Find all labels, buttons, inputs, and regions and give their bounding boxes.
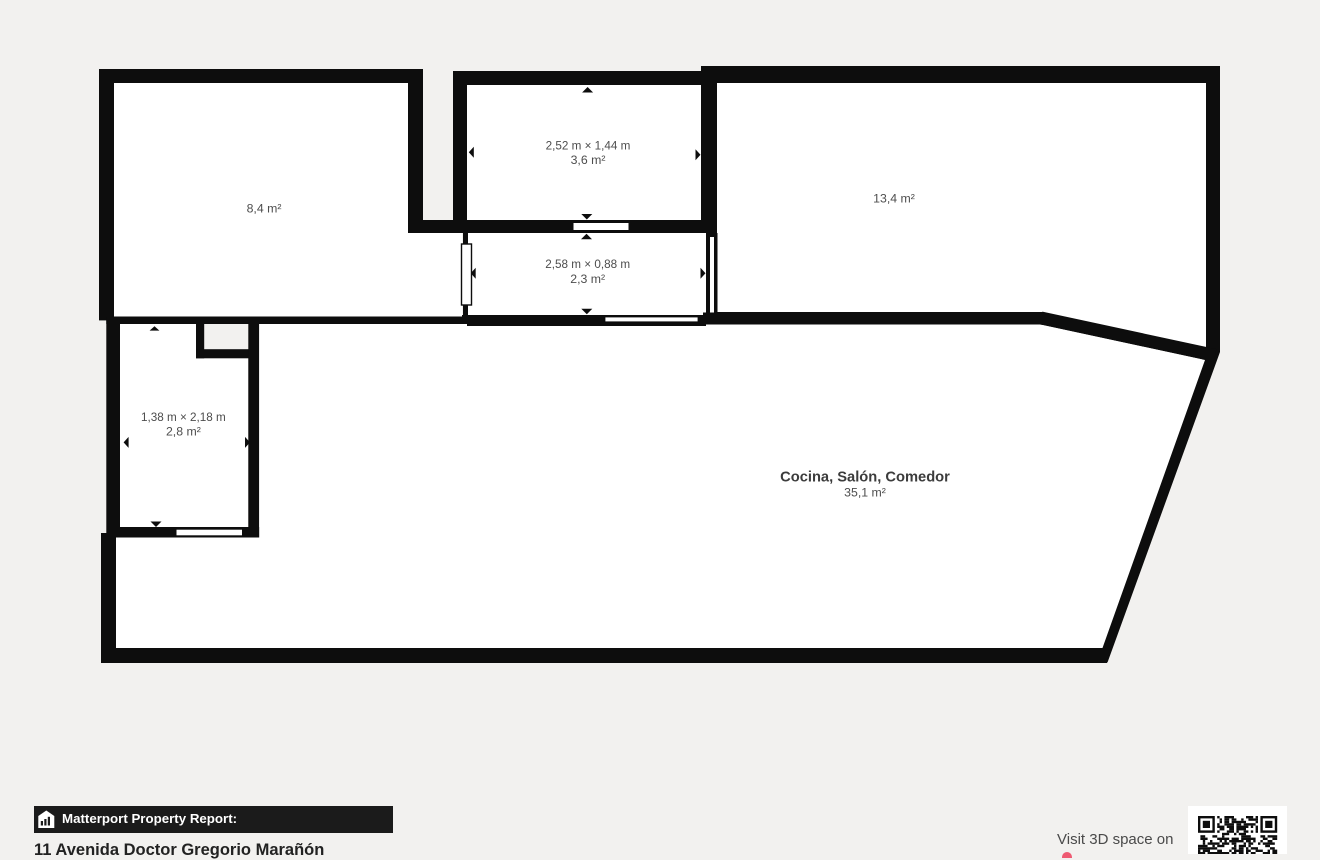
svg-text:Cocina, Salón, Comedor: Cocina, Salón, Comedor [780,470,950,486]
svg-text:2,8 m²: 2,8 m² [166,425,201,439]
svg-text:35,1 m²: 35,1 m² [844,485,886,499]
svg-text:8,4 m²: 8,4 m² [247,202,282,216]
svg-text:2,52 m × 1,44 m: 2,52 m × 1,44 m [546,140,631,153]
svg-text:1,38 m × 2,18 m: 1,38 m × 2,18 m [141,411,226,424]
svg-text:13,4 m²: 13,4 m² [873,191,915,205]
svg-text:3,6 m²: 3,6 m² [571,153,606,167]
svg-text:2,58 m × 0,88 m: 2,58 m × 0,88 m [545,258,630,271]
svg-text:2,3 m²: 2,3 m² [570,272,605,286]
